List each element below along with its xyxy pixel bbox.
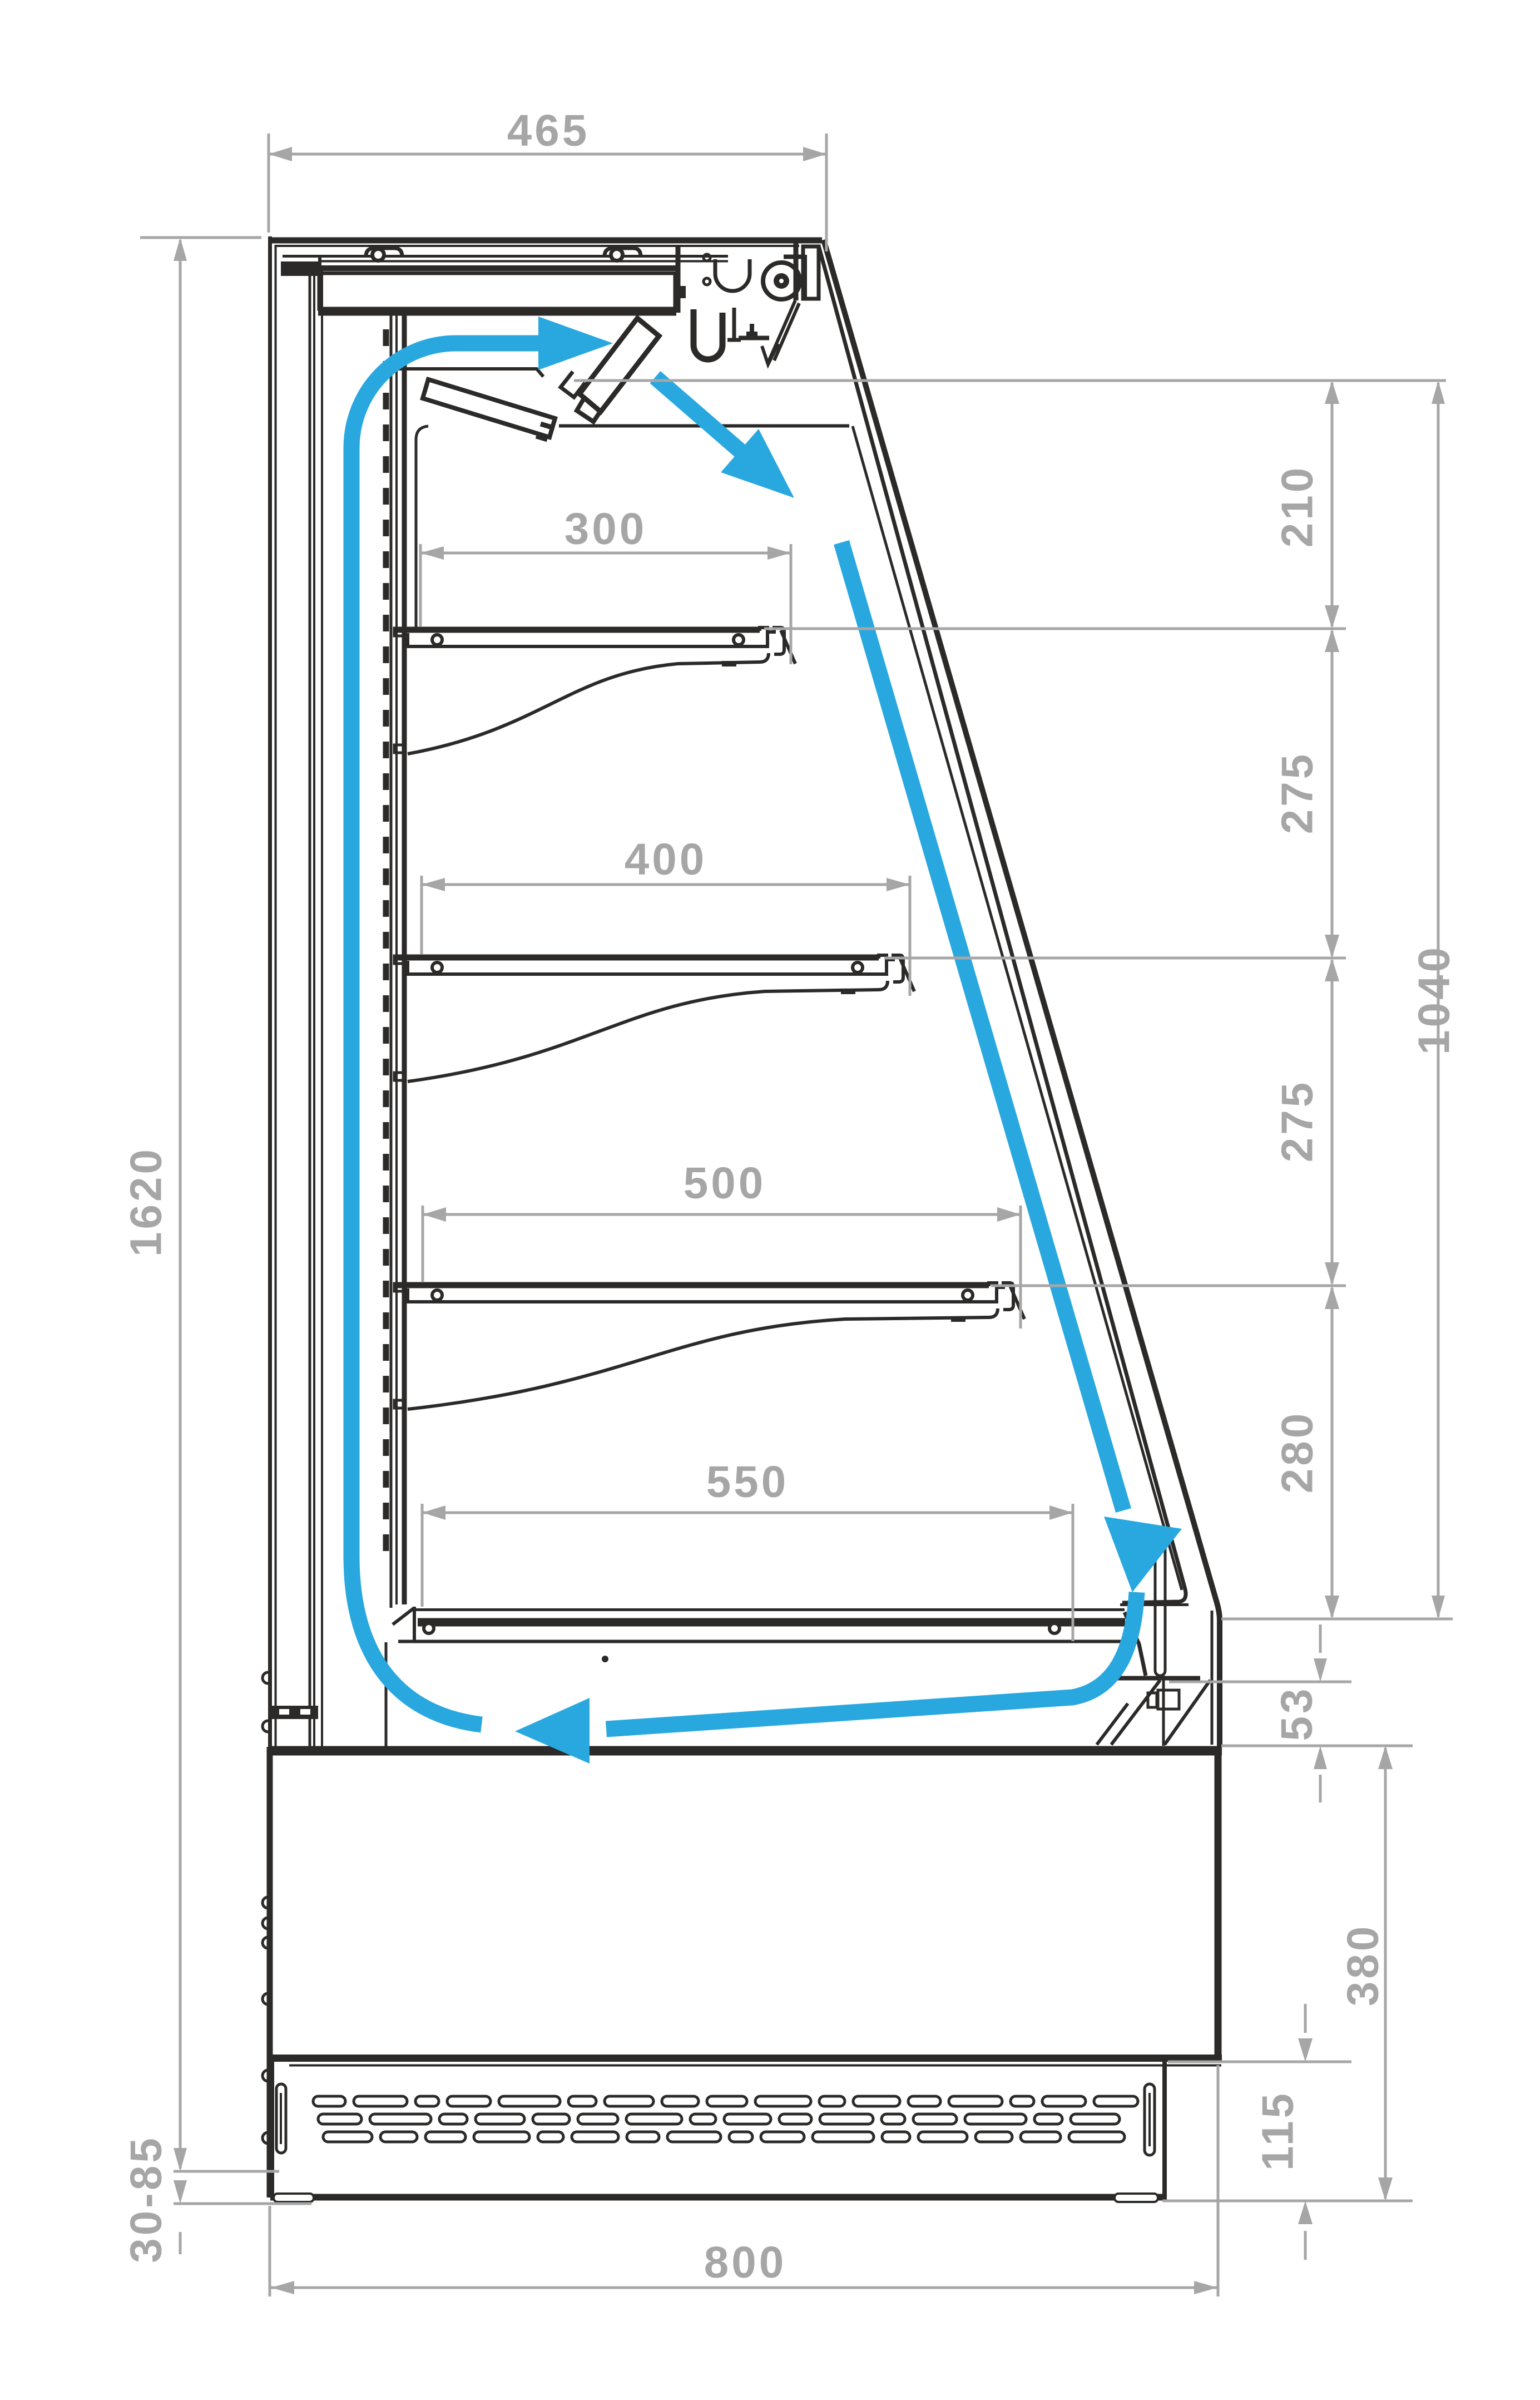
- svg-text:300: 300: [564, 504, 647, 554]
- svg-text:1620: 1620: [121, 1147, 171, 1257]
- svg-text:115: 115: [1253, 2091, 1303, 2171]
- svg-text:275: 275: [1272, 752, 1322, 834]
- svg-text:380: 380: [1338, 1924, 1388, 2006]
- svg-text:30-85: 30-85: [121, 2135, 171, 2263]
- svg-text:800: 800: [704, 2238, 786, 2287]
- svg-text:550: 550: [706, 1457, 789, 1507]
- svg-text:275: 275: [1272, 1080, 1322, 1162]
- svg-text:280: 280: [1272, 1411, 1322, 1493]
- svg-text:210: 210: [1272, 465, 1322, 547]
- svg-text:53: 53: [1272, 1686, 1321, 1741]
- svg-text:1040: 1040: [1409, 945, 1459, 1055]
- svg-text:500: 500: [684, 1158, 766, 1208]
- svg-text:465: 465: [507, 106, 590, 155]
- svg-text:400: 400: [625, 834, 707, 884]
